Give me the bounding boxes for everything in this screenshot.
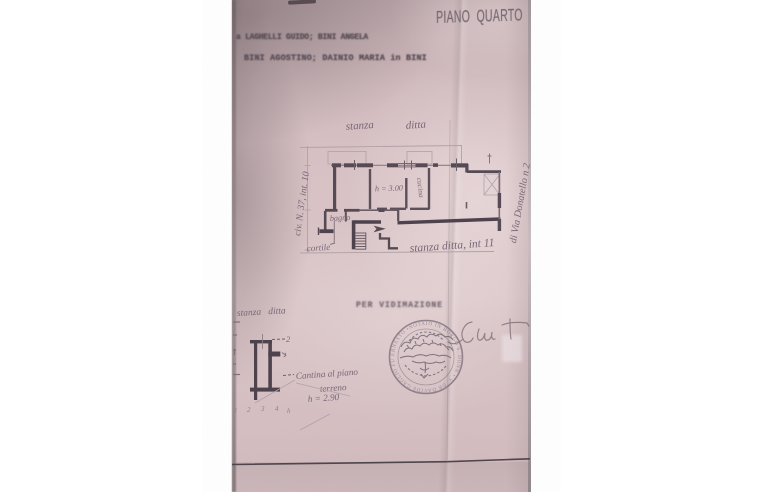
- svg-text:bagno: bagno: [330, 213, 351, 223]
- svg-text:1: 1: [234, 407, 238, 415]
- svg-text:Cantina al piano: Cantina al piano: [295, 367, 358, 381]
- svg-text:NOTAIO IN BORGO S. DONN • V. D: NOTAIO IN BORGO S. DONN • V. DR DAVIDE G…: [377, 308, 475, 407]
- svg-text:h: h: [287, 407, 291, 415]
- svg-text:ditta: ditta: [405, 119, 426, 132]
- svg-text:2: 2: [286, 334, 291, 344]
- svg-text:cucina: cucina: [415, 177, 426, 198]
- svg-text:2: 2: [247, 406, 251, 414]
- svg-text:h = 2.90: h = 2.90: [307, 392, 339, 404]
- svg-text:di Via Donatello n 2: di Via Donatello n 2: [508, 162, 533, 244]
- svg-text:stanza: stanza: [345, 119, 374, 133]
- svg-text:civ. N. 37, int. 10: civ. N. 37, int. 10: [293, 171, 312, 237]
- svg-text:4: 4: [275, 405, 279, 413]
- svg-text:h = 3.00: h = 3.00: [375, 183, 403, 193]
- svg-text:cortile: cortile: [306, 242, 330, 254]
- svg-text:stanza ditta: stanza ditta: [237, 306, 287, 319]
- svg-text:3: 3: [260, 405, 265, 413]
